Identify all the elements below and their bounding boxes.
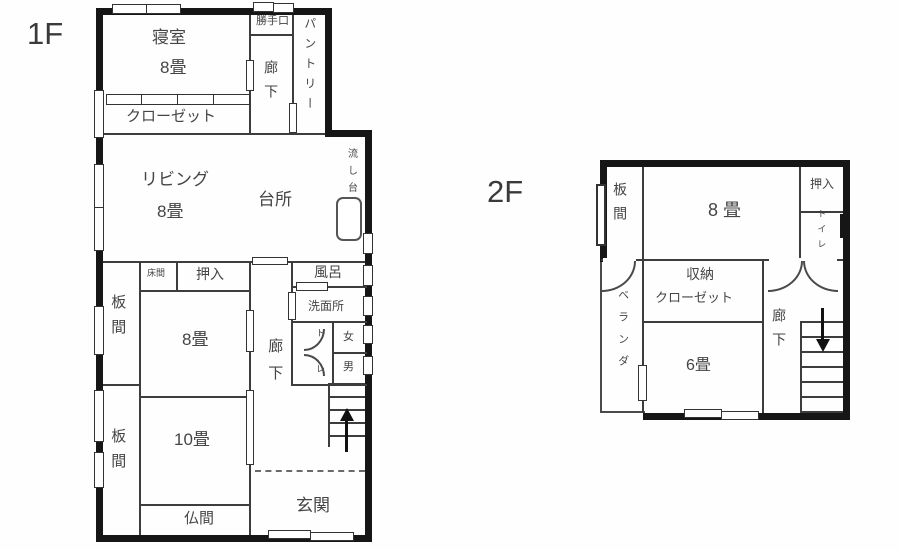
1f-wall-women-men-divider	[332, 352, 367, 354]
room-label-oshiire: 押入	[196, 266, 224, 282]
room-label-kitchen: 台所	[258, 190, 292, 210]
floor-plan-canvas: 1F	[0, 0, 900, 550]
room-label-itanoma-upper: 板間	[109, 294, 126, 344]
1f-slidedoor-corridor-10	[246, 390, 254, 465]
1f-slidedoor-bath	[296, 282, 328, 291]
2f-outer-wall-right	[843, 160, 850, 420]
2f-veranda-bottom-edge	[600, 411, 645, 413]
room-label-bath: 風呂	[314, 264, 342, 280]
floor1-title: 1F	[27, 16, 63, 52]
room-label-back-door: 勝手口	[256, 15, 289, 28]
room-label-bedroom-size: 8畳	[160, 58, 186, 78]
room-label-tokonoma: 床間	[147, 268, 165, 278]
1f-wall-washroom-bottom	[291, 321, 367, 323]
2f-toilet-door	[840, 214, 849, 238]
room-label-washroom: 洗面所	[308, 300, 344, 314]
1f-closet-slidedoor-1	[106, 94, 142, 105]
2f-double-door-arc-left	[768, 261, 803, 292]
room-label-2f-room6: 6畳	[686, 357, 711, 375]
1f-window-right-kitchen	[363, 233, 373, 254]
1f-wall-bath-left	[291, 261, 293, 385]
1f-wall-itanoma-divider	[103, 384, 141, 386]
room-label-entrance: 玄関	[296, 496, 330, 516]
room-label-pantry: パントリー	[302, 17, 316, 117]
2f-wall-oshiire-left	[799, 167, 801, 261]
1f-wall-oshiire-bottom	[139, 290, 251, 292]
2f-double-door-arc-right	[803, 261, 838, 292]
room-label-hallway-lower: 廊下	[266, 338, 283, 392]
1f-window-left-6	[94, 452, 104, 488]
room-label-living-size: 8畳	[157, 202, 183, 222]
2f-window-bottom-b	[721, 411, 759, 420]
up-arrow-shaft	[345, 418, 348, 452]
2f-wall-storage-bottom	[642, 321, 764, 323]
room-label-itanoma-lower: 板間	[109, 428, 126, 478]
label-toilet-to: ト	[316, 328, 325, 338]
1f-closet-slidedoor-2	[141, 94, 178, 105]
1f-wall-tokonoma-right	[176, 261, 178, 291]
1f-closet-slidedoor-4	[213, 94, 250, 105]
1f-window-right-women	[363, 325, 373, 344]
1f-window-left-2	[94, 164, 104, 208]
2f-window-veranda-room6	[638, 365, 647, 401]
1f-window-bedroom-top-a	[112, 4, 147, 14]
1f-wall-top-section-bottom	[103, 133, 325, 135]
2f-veranda-door-arc	[602, 261, 636, 292]
1f-backdoor-opening-a	[253, 2, 274, 12]
room-label-room10: 10畳	[174, 430, 210, 450]
1f-door-washroom	[288, 292, 296, 320]
1f-window-bedroom-top-b	[146, 4, 181, 14]
label-toilet-re: レ	[316, 364, 325, 374]
1f-backdoor-opening-b	[273, 3, 294, 13]
1f-wall-butsuma-top	[139, 504, 251, 506]
1f-door-bedroom-hall	[246, 60, 254, 91]
room-label-closet: クローゼット	[126, 108, 216, 125]
1f-window-right-men	[363, 356, 373, 375]
1f-window-left-3	[94, 207, 104, 251]
1f-genkan-threshold	[255, 470, 365, 472]
up-arrow-icon	[340, 408, 354, 421]
1f-closet-slidedoor-3	[177, 94, 214, 105]
1f-entrance-door-a	[268, 530, 311, 539]
1f-door-pantry	[289, 103, 297, 133]
2f-window-bottom-a	[684, 409, 722, 418]
down-arrow-shaft	[821, 308, 824, 340]
1f-outer-wall-right-upper	[325, 8, 332, 137]
floor2-title: 2F	[487, 174, 523, 210]
room-label-women: 女	[343, 331, 354, 344]
1f-window-left-4	[94, 306, 104, 355]
2f-outer-wall-top	[600, 160, 850, 167]
room-label-hallway-top: 廊下	[263, 60, 279, 108]
sink-fixture	[336, 197, 362, 241]
room-label-2f-toilet: トイレ	[816, 209, 826, 254]
1f-window-right-washroom	[363, 296, 373, 316]
room-label-butsuma: 仏間	[184, 510, 214, 527]
room-label-bedroom: 寝室	[152, 28, 186, 48]
2f-wall-room6-right	[762, 259, 764, 413]
room-label-2f-veranda: ベランダ	[616, 289, 629, 377]
1f-wall-itanoma-right	[139, 261, 141, 535]
1f-entrance-door-b	[310, 532, 354, 541]
down-arrow-icon	[816, 339, 830, 352]
1f-wall-backdoor-bottom	[251, 34, 292, 36]
room-label-2f-storage-closet: クローゼット	[655, 291, 733, 306]
room-label-2f-oshiire: 押入	[810, 178, 834, 192]
1f-door-kitchen-corridor	[252, 257, 288, 265]
1f-window-left-1	[94, 90, 104, 138]
room-label-room8: 8畳	[182, 330, 208, 350]
room-label-2f-itanoma: 板間	[612, 182, 628, 230]
1f-window-right-bath	[363, 265, 373, 286]
room-label-2f-storage: 収納	[686, 266, 714, 282]
1f-wall-8-10-divider	[139, 396, 251, 398]
room-label-men: 男	[343, 361, 354, 374]
room-label-living: リビング	[141, 170, 209, 190]
room-label-sink: 流し台	[345, 148, 357, 199]
1f-window-left-5	[94, 390, 104, 442]
1f-wall-living-bottom	[103, 261, 365, 263]
2f-window-itanoma-left	[596, 184, 606, 246]
room-label-2f-room8: 8畳	[708, 200, 746, 221]
room-label-2f-hallway: 廊下	[771, 308, 787, 356]
1f-slidedoor-corridor-8	[246, 310, 254, 352]
